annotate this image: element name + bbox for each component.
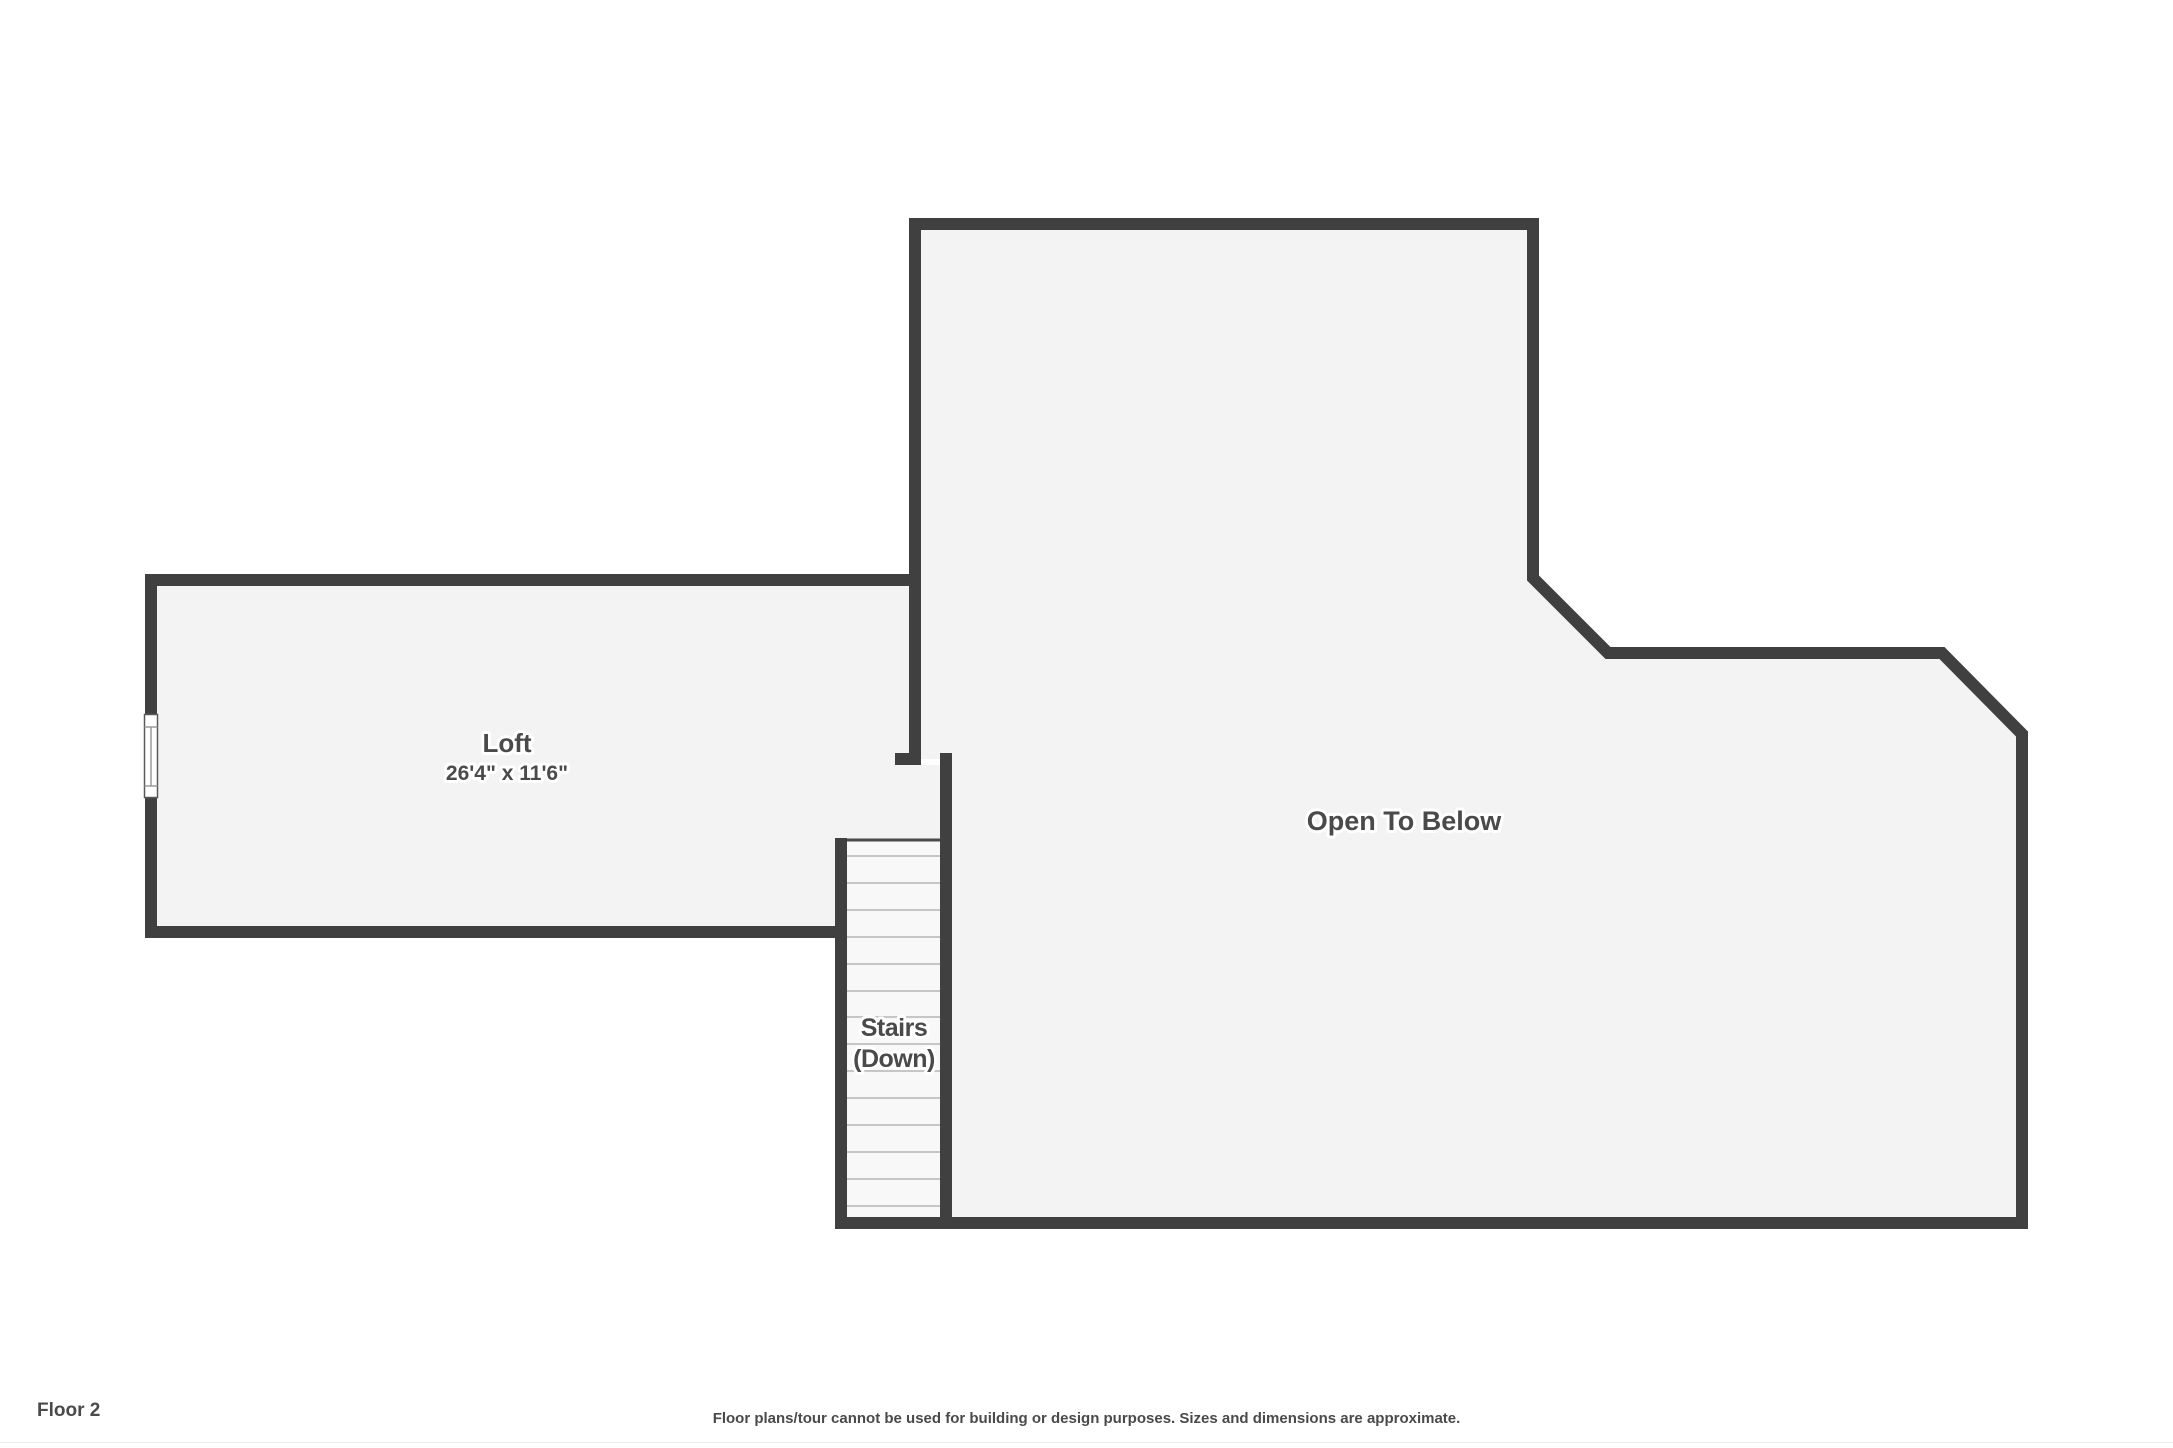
window-icon — [145, 715, 158, 798]
disclaimer-text: Floor plans/tour cannot be used for buil… — [0, 1410, 2173, 1427]
loft-label: Loft — [482, 728, 531, 758]
floor-plan: Loft 26'4" x 11'6" Open To Below Stairs … — [0, 0, 2173, 1448]
loft-floor — [151, 580, 946, 932]
open-to-below-floor — [915, 224, 2022, 1223]
footer-divider — [0, 1442, 2173, 1443]
loft-dimensions: 26'4" x 11'6" — [446, 762, 568, 785]
open-to-below-label: Open To Below — [1307, 806, 1502, 836]
floor-plan-page: { "floor_plan": { "rooms": { "loft": { "… — [0, 0, 2173, 1448]
stairs-label-line2: (Down) — [853, 1045, 935, 1073]
stairs-label-line1: Stairs — [861, 1014, 927, 1042]
